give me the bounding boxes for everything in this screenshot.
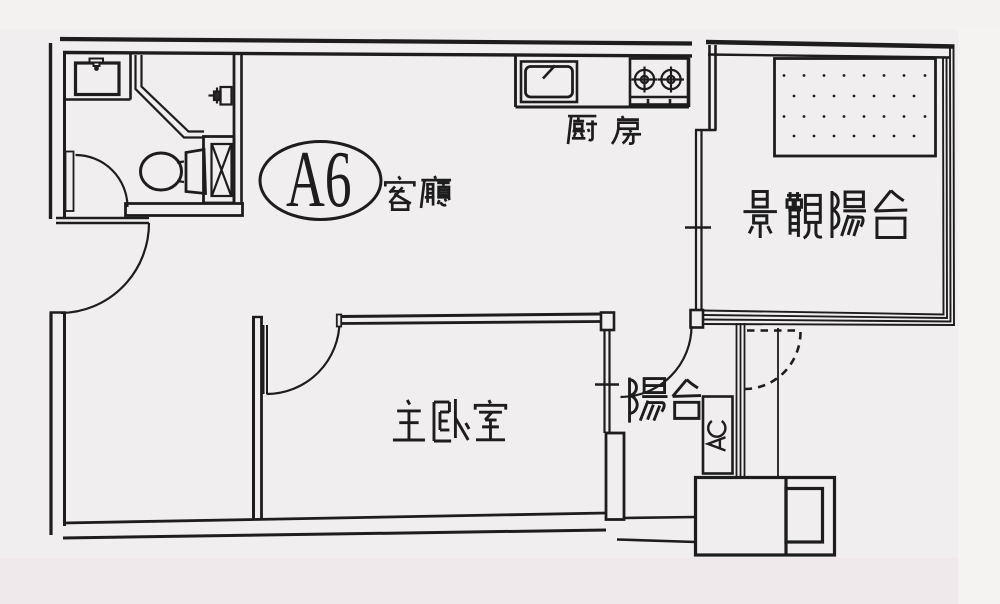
svg-text:A6: A6	[286, 134, 352, 224]
